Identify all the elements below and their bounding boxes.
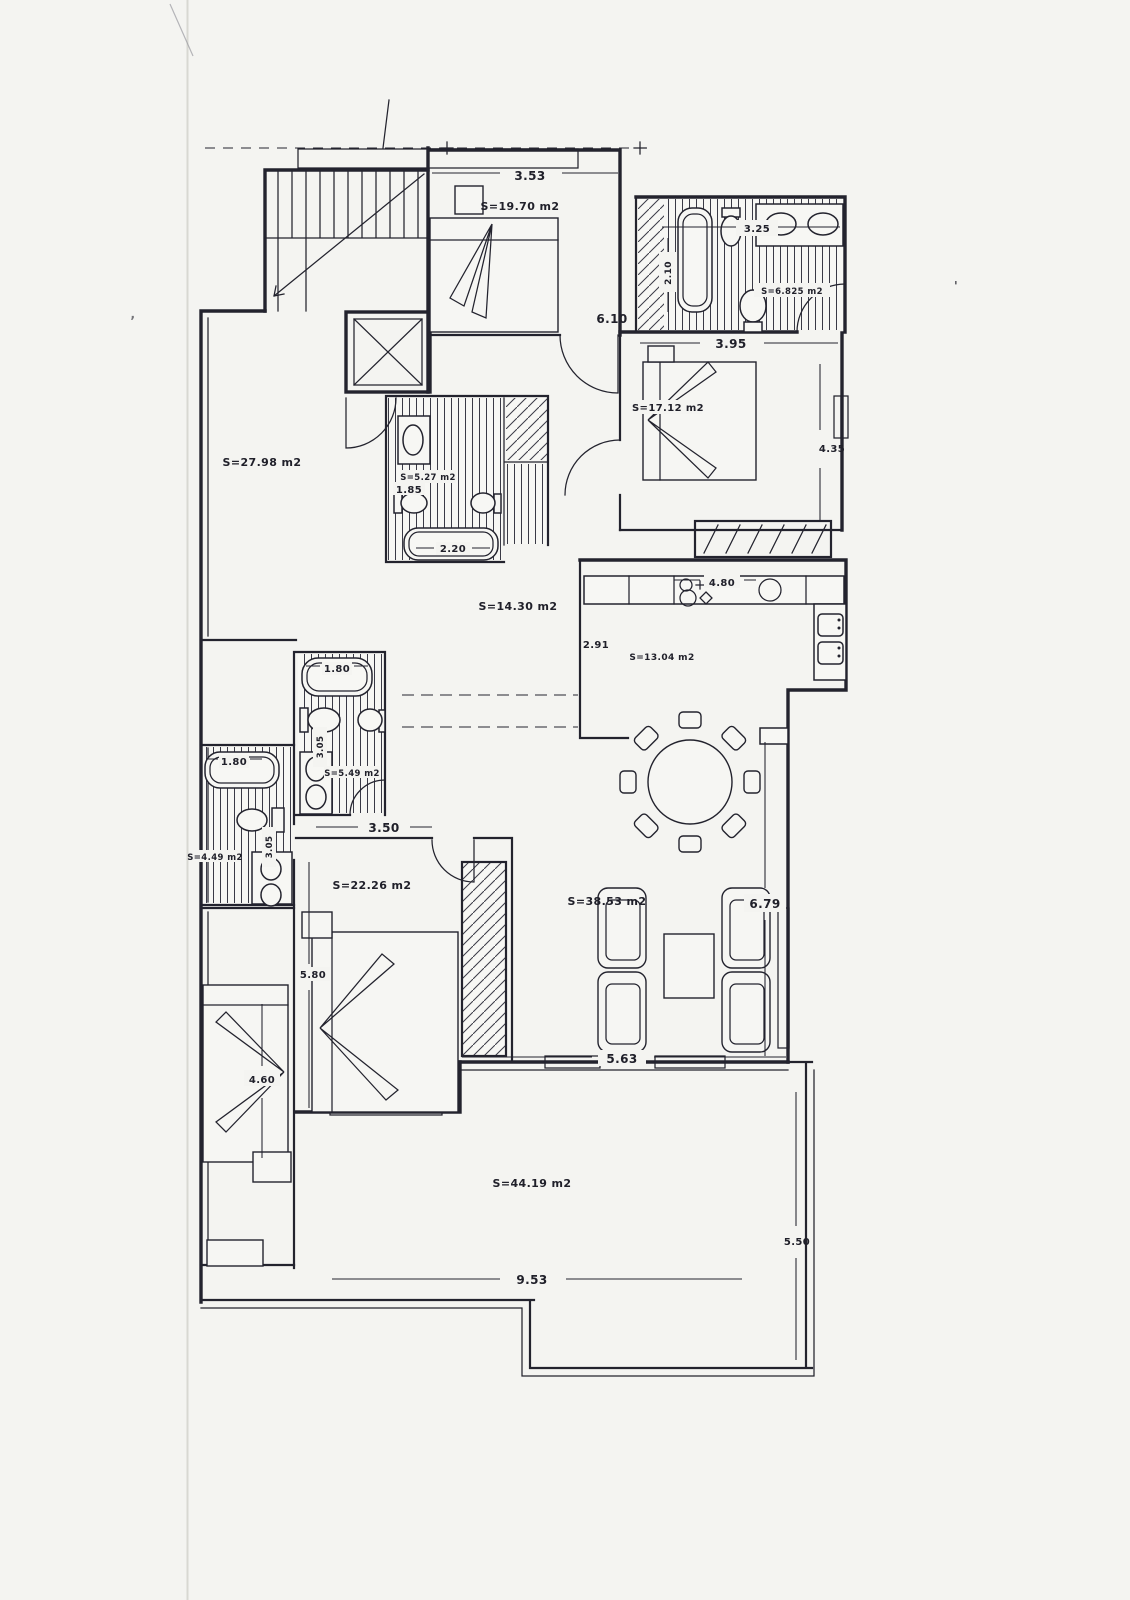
- hall-closet-tiles: [506, 464, 548, 544]
- closet-top-bedroom: [455, 186, 483, 214]
- dim-mid-bath-tub: 2.20: [440, 544, 466, 555]
- toilet-2-tank: [300, 708, 308, 732]
- scan-paper: [0, 0, 1130, 1600]
- dim-bedroom2-height: 5.80: [300, 970, 326, 981]
- dim-right-bedroom-height: 4.35: [819, 444, 845, 455]
- sink-top-2: [808, 213, 838, 235]
- appliance-dot-1: [838, 619, 841, 622]
- sink-mid: [403, 425, 423, 455]
- dining-chair: [620, 771, 636, 793]
- dim-living-width: 5.63: [606, 1052, 637, 1066]
- dim-bath2-tub: 1.80: [324, 664, 350, 675]
- dresser-left-bedroom: [207, 1240, 263, 1266]
- dim-kitchen-width: 4.80: [709, 578, 735, 589]
- dim-bath3-depth: 3.05: [265, 836, 275, 859]
- area-right-bedroom: S=17.12 m2: [632, 403, 704, 414]
- dining-chair: [679, 712, 701, 728]
- area-living: S=38.53 m2: [568, 895, 647, 908]
- bed-bedroom2: [302, 912, 458, 1112]
- dim-living-height: 6.79: [749, 897, 780, 911]
- toilet-mid: [401, 493, 427, 513]
- area-bath3: S=4.49 m2: [187, 853, 243, 863]
- floor-plan-sheet: 3.53 S=19.70 m2 3.25 2.10 S=6.825 m2 6.1…: [0, 0, 1130, 1600]
- dim-mid-bath-width: 1.85: [396, 485, 422, 496]
- dim-top-bath-depth: 2.10: [664, 261, 674, 285]
- appliance-dot-3: [838, 647, 841, 650]
- area-mid-bath: S=5.27 m2: [400, 473, 456, 483]
- dim-bedroom2-width: 3.50: [368, 821, 399, 835]
- bedroom2-wardrobe-hatch: [462, 862, 506, 1056]
- appliance-dot-4: [838, 655, 841, 658]
- sink-3b: [261, 884, 281, 906]
- dim-right-bedroom-width: 3.95: [715, 337, 746, 351]
- dim-hall-top: 6.10: [596, 312, 627, 326]
- dim-left-bedroom-height: 4.60: [249, 1075, 275, 1086]
- hall-closet-hatch: [506, 398, 548, 460]
- area-kitchen: S=13.04 m2: [629, 653, 694, 663]
- kitchen-pier: [760, 728, 788, 744]
- appliance-dot-2: [838, 627, 841, 630]
- kitchen-appliance-2: [818, 642, 843, 664]
- dim-terrace-height: 5.50: [784, 1237, 810, 1248]
- area-top-bath: S=6.825 m2: [761, 287, 823, 297]
- dim-top-bath-width: 3.25: [744, 224, 770, 235]
- bidet-top-base: [744, 322, 762, 332]
- area-bedroom2: S=22.26 m2: [333, 879, 412, 892]
- area-left-room: S=27.98 m2: [223, 456, 302, 469]
- scan-speck-left: ,: [131, 307, 136, 321]
- dining-table: [648, 740, 732, 824]
- bed-2: [312, 932, 458, 1112]
- bed-top: [430, 218, 558, 332]
- dim-bath2-depth: 3.05: [316, 736, 326, 759]
- dim-top-bedroom-width: 3.53: [514, 169, 545, 183]
- bidet-mid: [471, 493, 495, 513]
- dim-terrace-width: 9.53: [516, 1273, 547, 1287]
- area-top-bedroom: S=19.70 m2: [481, 200, 560, 213]
- dining-chair: [744, 771, 760, 793]
- dim-bath3-tub: 1.80: [221, 757, 247, 768]
- dining-chair: [679, 836, 701, 852]
- area-terrace: S=44.19 m2: [493, 1177, 572, 1190]
- kitchen-appliance-1: [818, 614, 843, 636]
- area-bath2: S=5.49 m2: [324, 769, 380, 779]
- bidet-2: [358, 709, 382, 731]
- nightstand-bedroom2: [302, 912, 332, 938]
- scan-speck-right: ': [954, 279, 958, 293]
- area-hall: S=14.30 m2: [479, 600, 558, 613]
- dim-kitchen-depth: 2.91: [583, 640, 609, 651]
- nightstand-right-bedroom: [648, 346, 674, 362]
- nightstand-left-bedroom: [253, 1152, 291, 1182]
- coffee-table: [664, 934, 714, 998]
- sink-2b: [306, 785, 326, 809]
